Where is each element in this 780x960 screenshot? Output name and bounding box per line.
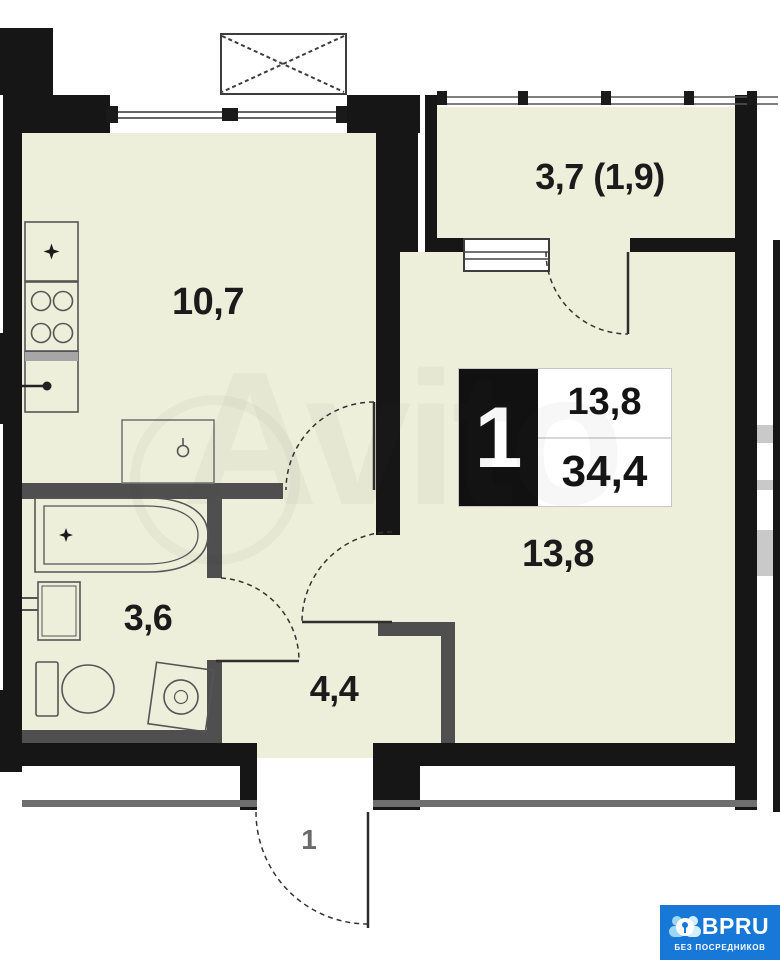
apartment-info-box: 1 13,8 34,4 [458,368,672,507]
floor-plan: 10,7 3,7 (1,9) 13,8 3,6 4,4 1 1 13,8 34,… [0,0,780,960]
kitchen-window-lines [106,106,347,123]
kitchen-fixtures [22,222,214,483]
total-area-value: 34,4 [538,439,671,507]
balcony-door-arc [546,252,628,334]
logo-brand-text: BPRU [702,915,769,938]
toilet-bowl [62,665,114,713]
living-area-value: 13,8 [538,369,671,439]
balcony-window-lines [464,252,549,259]
logo-tagline-text: БЕЗ ПОСРЕДНИКОВ [674,943,765,952]
bath-sink [38,582,80,640]
balcony-glazing [437,91,778,105]
bpru-logo: BPRU БЕЗ ПОСРЕДНИКОВ [660,905,780,960]
counter-tap-icon [178,446,189,457]
door-leaves [216,252,628,928]
people-keyhole-icon [671,914,699,940]
rooms-count-cell: 1 [459,369,538,506]
washing-machine [148,662,214,731]
living-door-arc [302,532,392,622]
kitchen-door-arc [286,402,374,490]
toilet-tank [36,662,58,716]
door-arcs [221,252,628,924]
bathroom-area-label: 3,6 [88,597,208,639]
hallway-area-label: 4,4 [274,668,394,710]
entrance-door-label: 1 [284,824,334,856]
bathroom-door-arc [221,578,299,661]
balcony-area-label: 3,7 (1,9) [460,156,740,198]
living-area-label: 13,8 [478,533,638,576]
kitchen-area-label: 10,7 [128,281,288,324]
stove [25,282,78,351]
shaft-cross-lines [222,36,344,92]
kitchen-counter [122,420,214,483]
